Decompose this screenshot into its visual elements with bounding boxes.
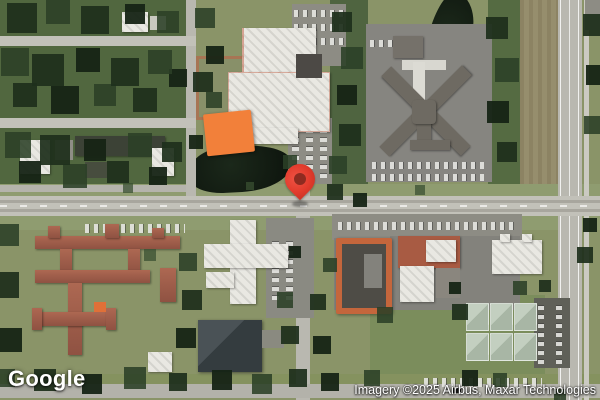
hospital-wing [152,228,164,238]
building-wing [206,272,234,288]
car-row [320,124,327,178]
building [85,162,107,178]
car-row [372,174,484,181]
hospital-wing [38,312,112,326]
mowed-field [520,0,560,192]
hospital-wing [105,224,119,238]
lane-wear [0,209,600,212]
car-row [85,224,185,233]
building [500,234,510,242]
hospital-wing [160,268,176,302]
imagery-attribution: Imagery ©2025 Airbus, Maxar Technologies [354,383,596,397]
car-row [556,302,562,364]
hospital-wing [35,270,150,283]
hospital-wing [32,308,42,330]
car-row [338,222,514,230]
tennis-court [514,303,537,331]
small-orange-roof [94,302,106,312]
tennis-court [466,333,489,361]
side-road [0,36,196,46]
car-row [294,10,344,17]
parking-lot [55,140,73,160]
building [393,36,423,58]
tennis-court [466,303,489,331]
car-row [372,162,484,169]
building-wing [410,140,450,150]
terracotta-building-notch [364,254,382,288]
building-wing [400,266,434,302]
building-wing [436,268,460,298]
building [492,240,542,274]
map-viewport[interactable]: Google Imagery ©2025 Airbus, Maxar Techn… [0,0,600,400]
building-core [412,100,436,124]
side-road [186,0,196,196]
building [150,16,166,30]
building [122,12,148,32]
building [522,234,532,242]
building-roof-section [426,240,456,262]
parking-lot [585,0,600,30]
building [20,140,50,174]
tennis-court [514,333,537,361]
pin-inner-dot [292,171,309,188]
access-road [0,185,186,192]
tennis-court [490,333,513,361]
tennis-court [490,303,513,331]
hospital-wing [106,308,116,330]
building [262,330,284,348]
google-logo[interactable]: Google [8,366,86,392]
orange-building [203,110,255,157]
building-wing [204,244,288,268]
pin-shadow [292,201,308,207]
hospital-wing [48,226,60,238]
forest-area [488,0,522,192]
building-roof-section [296,54,322,78]
building [252,128,298,144]
side-road [0,118,196,128]
building [198,320,262,372]
building [148,352,172,372]
building [152,148,174,176]
car-row [538,302,544,364]
